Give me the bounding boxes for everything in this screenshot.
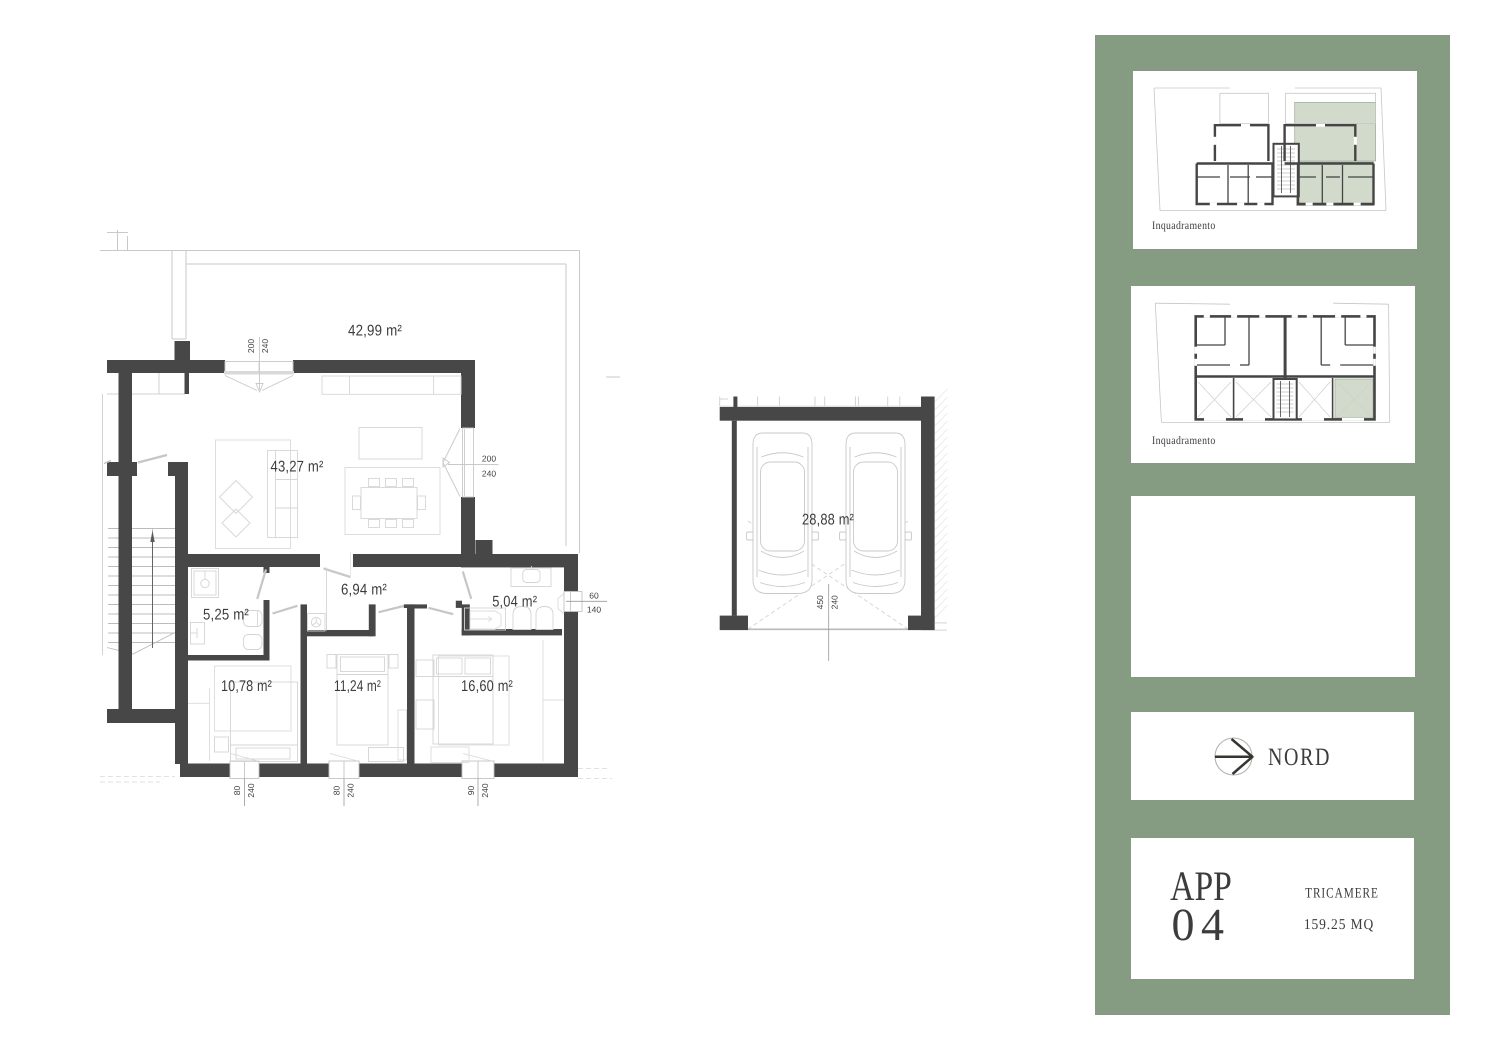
svg-text:28,88 m²: 28,88 m²	[802, 512, 854, 529]
svg-text:NORD: NORD	[1268, 744, 1331, 771]
svg-text:240: 240	[246, 783, 256, 797]
svg-text:140: 140	[587, 605, 601, 615]
svg-text:Inquadramento: Inquadramento	[1152, 435, 1216, 447]
svg-text:Inquadramento: Inquadramento	[1152, 220, 1216, 232]
svg-text:450: 450	[815, 595, 825, 609]
svg-text:16,60 m²: 16,60 m²	[461, 678, 513, 695]
svg-text:5,04 m²: 5,04 m²	[492, 594, 537, 611]
svg-text:159.25 MQ: 159.25 MQ	[1304, 917, 1374, 933]
svg-text:240: 240	[345, 783, 355, 797]
svg-text:11,24 m²: 11,24 m²	[334, 678, 381, 695]
svg-text:5,25 m²: 5,25 m²	[203, 607, 249, 624]
svg-text:10,78 m²: 10,78 m²	[221, 678, 272, 695]
svg-text:240: 240	[260, 339, 270, 353]
svg-text:80: 80	[232, 786, 242, 796]
svg-text:240: 240	[830, 595, 840, 609]
svg-text:60: 60	[589, 591, 599, 601]
svg-text:04: 04	[1172, 899, 1231, 950]
svg-text:200: 200	[246, 339, 256, 353]
svg-text:90: 90	[466, 786, 476, 796]
svg-text:TRICAMERE: TRICAMERE	[1305, 886, 1379, 902]
svg-text:240: 240	[482, 469, 496, 479]
svg-text:6,94 m²: 6,94 m²	[341, 582, 387, 599]
svg-text:240: 240	[480, 783, 490, 797]
svg-text:42,99 m²: 42,99 m²	[348, 323, 402, 340]
svg-text:43,27 m²: 43,27 m²	[271, 459, 324, 476]
svg-text:200: 200	[482, 454, 496, 464]
svg-text:80: 80	[331, 786, 341, 796]
